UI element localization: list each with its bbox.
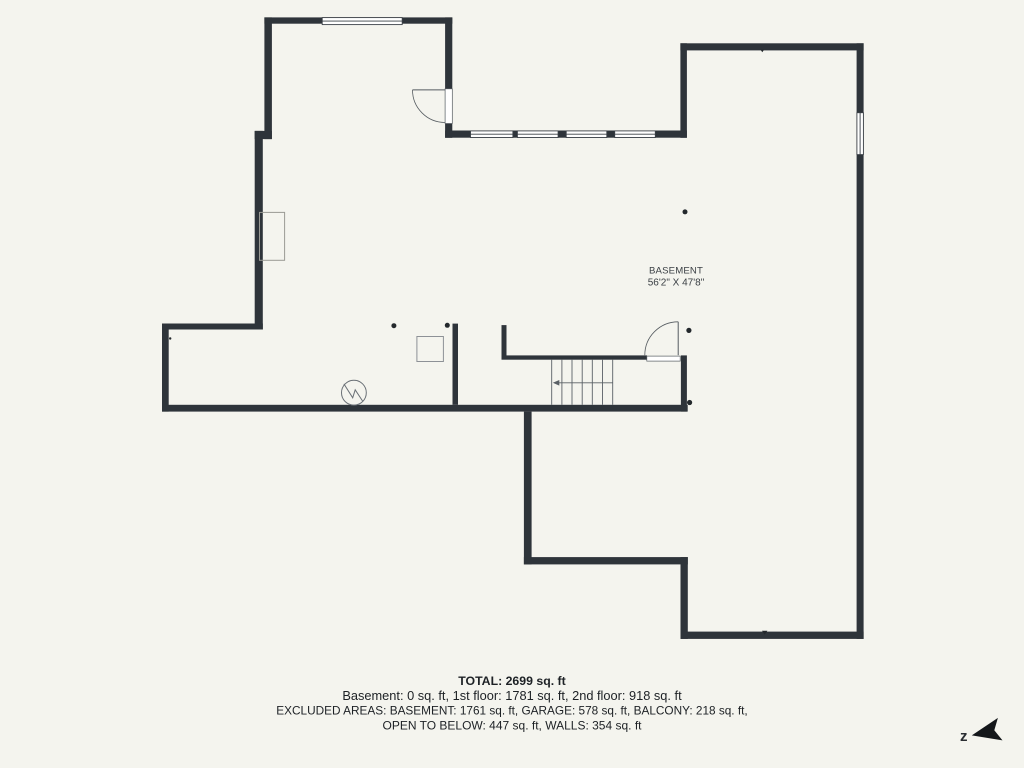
svg-text:Basement: 0 sq. ft, 1st floor:: Basement: 0 sq. ft, 1st floor: 1781 sq. … [342, 688, 682, 703]
svg-text:EXCLUDED AREAS: BASEMENT: 1761: EXCLUDED AREAS: BASEMENT: 1761 sq. ft, G… [276, 704, 747, 718]
svg-text:BASEMENT: BASEMENT [649, 266, 703, 277]
svg-text:TOTAL: 2699 sq. ft: TOTAL: 2699 sq. ft [458, 674, 566, 688]
svg-text:56'2" X 47'8": 56'2" X 47'8" [648, 278, 705, 289]
svg-text:OPEN TO BELOW: 447 sq. ft, WAL: OPEN TO BELOW: 447 sq. ft, WALLS: 354 sq… [382, 718, 642, 732]
svg-text:z: z [960, 728, 968, 745]
